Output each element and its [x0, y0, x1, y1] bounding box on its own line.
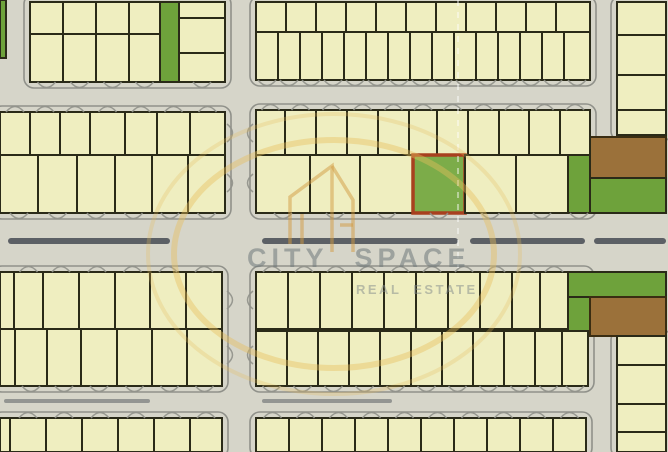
plot	[154, 418, 190, 452]
plot	[564, 32, 590, 80]
plot	[617, 110, 666, 135]
plot	[406, 2, 436, 32]
plot	[0, 418, 10, 452]
plot	[256, 2, 286, 32]
plot	[79, 272, 115, 329]
plot	[157, 112, 190, 155]
road-median-stripe	[8, 238, 170, 244]
plot	[30, 34, 63, 82]
plot	[60, 112, 90, 155]
plot	[520, 32, 542, 80]
plot	[466, 2, 496, 32]
road-median-stripe	[262, 399, 392, 403]
plot	[617, 404, 666, 432]
plot	[322, 32, 344, 80]
plot	[0, 329, 15, 386]
plot	[360, 155, 413, 213]
plot	[432, 32, 454, 80]
plot	[542, 32, 564, 80]
plot	[190, 112, 225, 155]
plot	[421, 418, 454, 452]
plot	[179, 53, 225, 82]
plot	[320, 272, 352, 329]
plot	[63, 2, 96, 34]
plot	[560, 110, 590, 155]
road-median-stripe	[594, 238, 666, 244]
plot	[322, 418, 355, 452]
plot	[0, 272, 14, 329]
plot	[187, 329, 222, 386]
plot	[129, 34, 160, 82]
plot	[617, 336, 666, 365]
plot	[30, 112, 60, 155]
plot	[256, 155, 310, 213]
plot	[96, 2, 129, 34]
plot	[529, 110, 560, 155]
plot	[436, 2, 466, 32]
plot	[43, 272, 79, 329]
green-area-upper	[590, 178, 666, 213]
plot	[349, 331, 380, 386]
plot	[0, 155, 38, 213]
plot	[499, 110, 529, 155]
plot	[152, 329, 187, 386]
plot	[388, 32, 410, 80]
plot	[355, 418, 388, 452]
plot	[0, 112, 30, 155]
plot	[14, 272, 43, 329]
map-canvas	[0, 0, 668, 452]
plot	[47, 329, 81, 386]
plot	[344, 32, 366, 80]
plot	[516, 155, 568, 213]
plot	[617, 432, 666, 452]
green-area-lower-strip	[568, 297, 590, 331]
plot	[278, 32, 300, 80]
plot	[388, 418, 421, 452]
plot	[96, 34, 129, 82]
plot	[115, 155, 152, 213]
plot	[617, 365, 666, 404]
plot	[90, 112, 125, 155]
plot	[179, 18, 225, 53]
plot	[125, 112, 157, 155]
plot	[346, 2, 376, 32]
plot	[562, 331, 588, 386]
plot	[316, 110, 347, 155]
plot	[454, 418, 487, 452]
plot	[286, 2, 316, 32]
plot	[535, 331, 562, 386]
green-plot	[568, 155, 590, 213]
plot	[288, 272, 320, 329]
plot	[617, 2, 666, 35]
plot	[617, 75, 666, 110]
plot	[256, 418, 289, 452]
plot	[316, 2, 346, 32]
plot	[366, 32, 388, 80]
plot	[190, 418, 222, 452]
plot	[487, 418, 520, 452]
plot	[556, 2, 590, 32]
plot	[115, 272, 150, 329]
plot	[300, 32, 322, 80]
plot	[376, 2, 406, 32]
plot	[540, 272, 568, 329]
road-median-stripe	[4, 399, 150, 403]
plot	[473, 331, 504, 386]
plot	[15, 329, 47, 386]
brown-plot-lower	[590, 297, 666, 336]
green-area-lower-top	[568, 272, 666, 297]
plot	[46, 418, 82, 452]
plot	[318, 331, 349, 386]
plot	[498, 32, 520, 80]
plot	[82, 418, 118, 452]
plot	[468, 110, 499, 155]
plot	[152, 155, 188, 213]
plot	[553, 418, 586, 452]
plot	[179, 2, 225, 18]
plot	[10, 418, 46, 452]
plot	[38, 155, 77, 213]
plot	[117, 329, 152, 386]
plot	[129, 2, 160, 34]
road-median-stripe	[470, 238, 585, 244]
plot	[504, 331, 535, 386]
plot	[77, 155, 115, 213]
plot	[496, 2, 526, 32]
plot	[526, 2, 556, 32]
plot	[63, 34, 96, 82]
plot	[476, 32, 498, 80]
plot	[617, 35, 666, 75]
plot	[30, 2, 63, 34]
plot	[289, 418, 322, 452]
plot	[410, 32, 432, 80]
plot	[352, 272, 384, 329]
green-strip	[160, 2, 179, 82]
plot	[256, 32, 278, 80]
plot	[256, 272, 288, 329]
plot	[287, 331, 318, 386]
plot	[384, 272, 416, 329]
plot	[520, 418, 553, 452]
plot	[118, 418, 154, 452]
plot	[81, 329, 117, 386]
brown-plot-upper	[590, 137, 666, 178]
green-sliver	[0, 0, 6, 58]
plot	[416, 272, 448, 329]
plot-map-image: CITY SPACE REAL ESTATE	[0, 0, 668, 452]
